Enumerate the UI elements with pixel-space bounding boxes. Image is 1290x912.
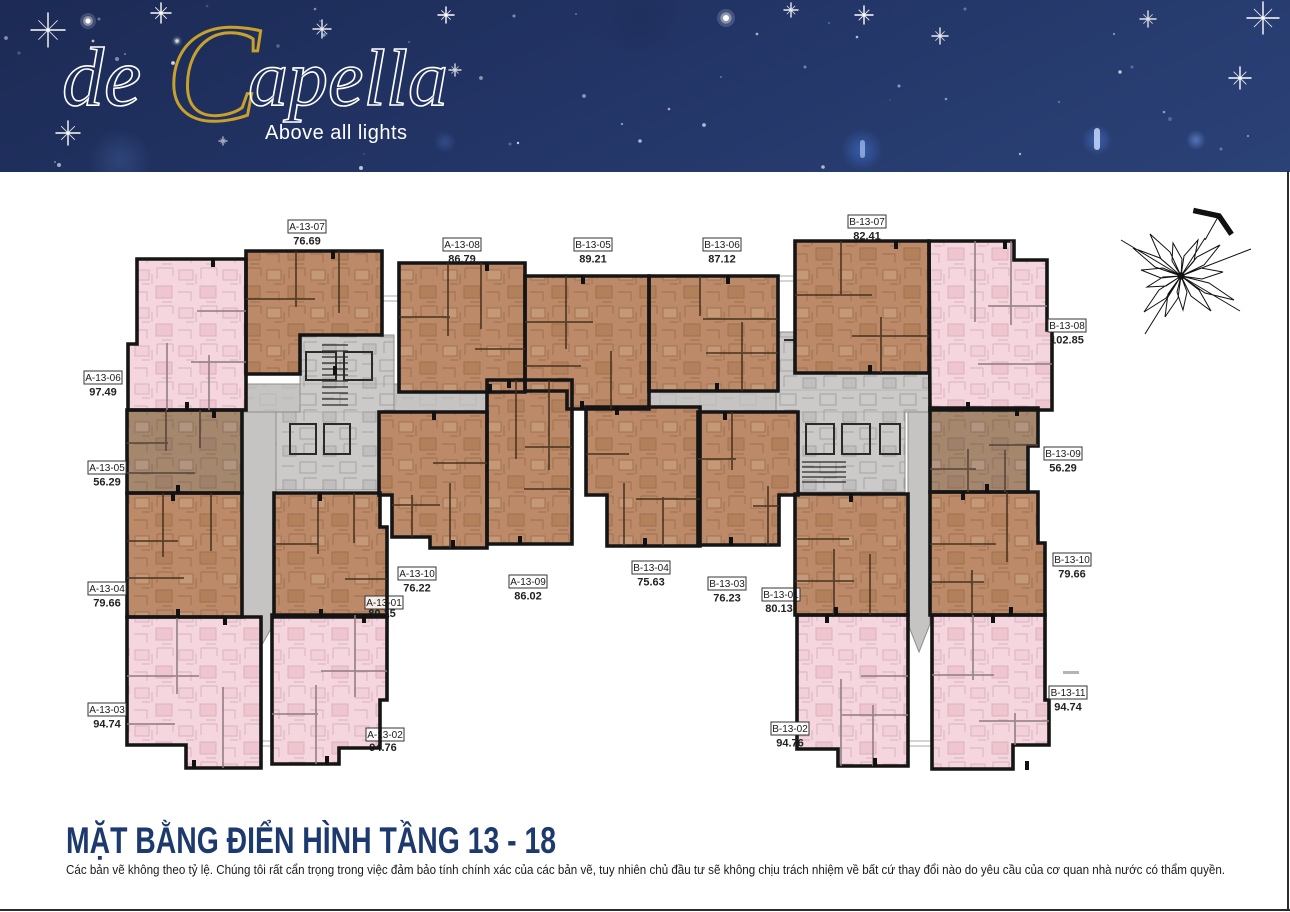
svg-text:Các bản vẽ không theo tỷ lệ. C: Các bản vẽ không theo tỷ lệ. Chúng tôi r…: [66, 863, 1225, 877]
svg-text:MẶT BẰNG ĐIỂN HÌNH TẦNG 13 - 1: MẶT BẰNG ĐIỂN HÌNH TẦNG 13 - 18: [66, 819, 556, 861]
